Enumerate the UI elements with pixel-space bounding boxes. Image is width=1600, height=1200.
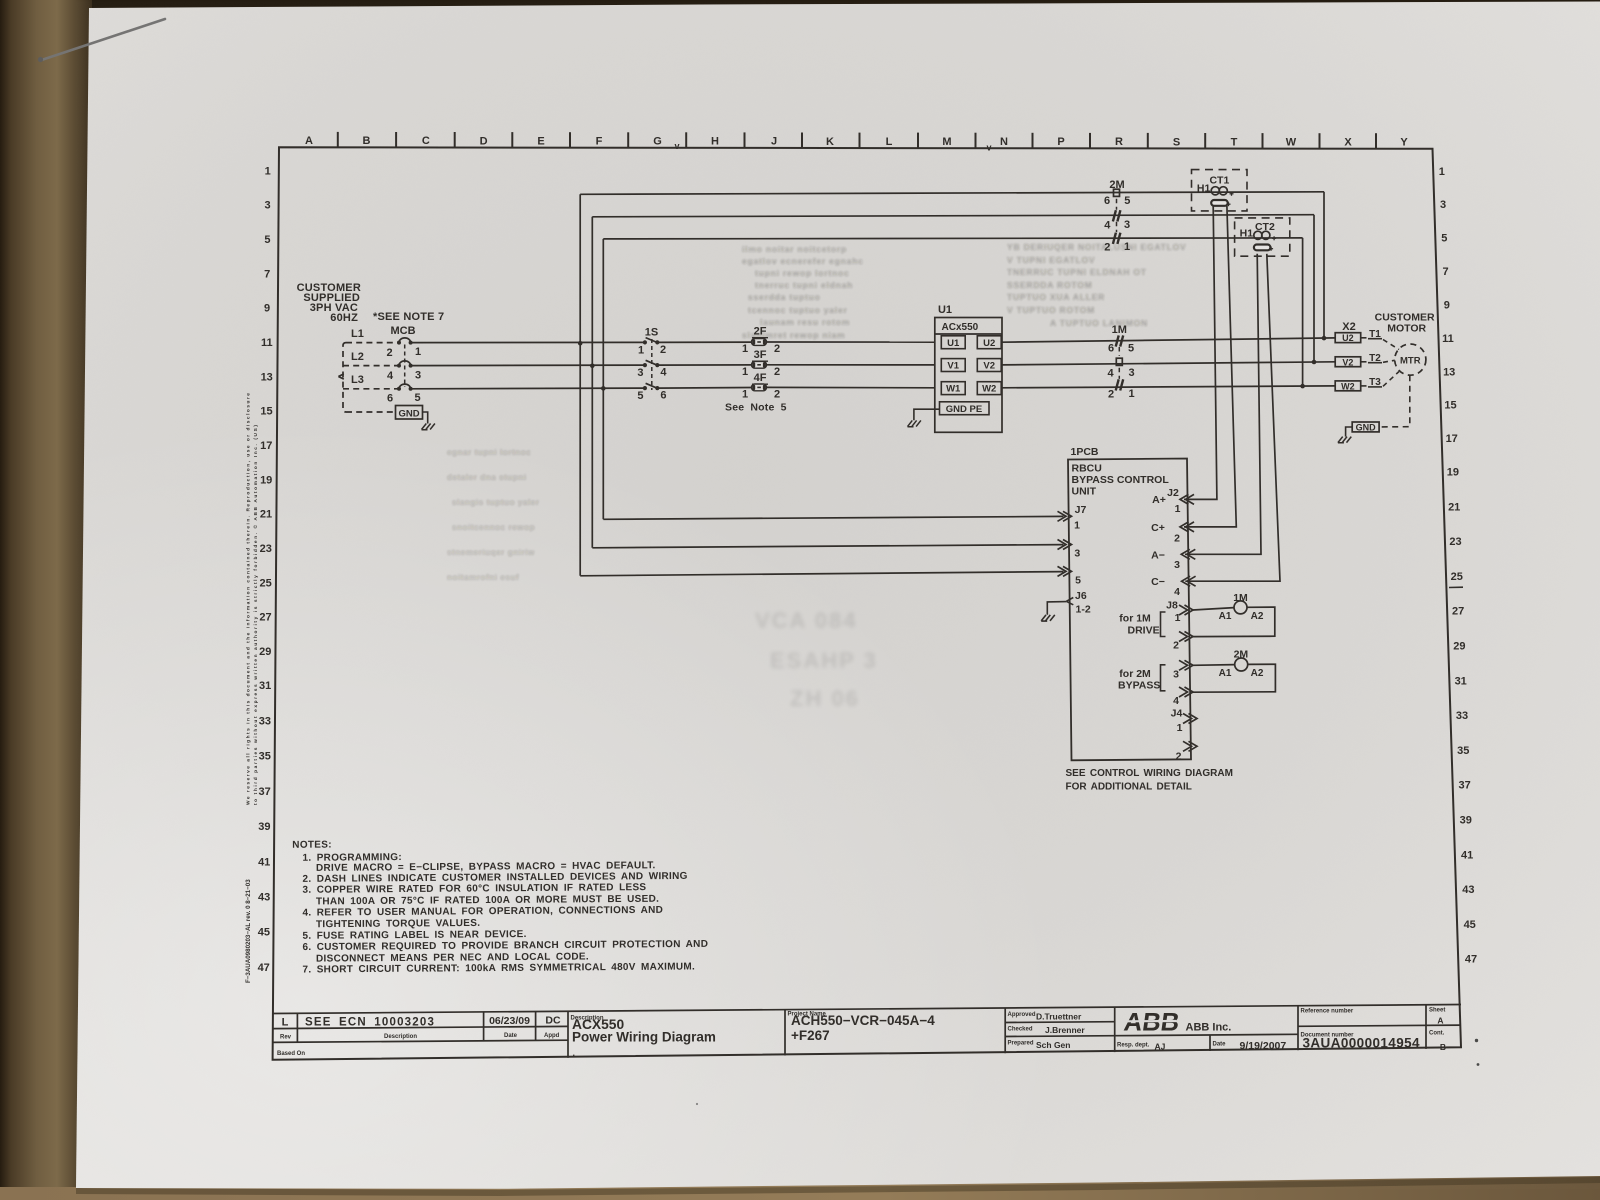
svg-text:MTR: MTR bbox=[1400, 355, 1421, 366]
svg-text:4: 4 bbox=[1107, 368, 1114, 380]
svg-text:11: 11 bbox=[1442, 333, 1454, 345]
svg-text:9/19/2007: 9/19/2007 bbox=[1240, 1040, 1287, 1052]
svg-text:H1: H1 bbox=[1240, 228, 1254, 240]
svg-text:F−3AUA0980203−AL rev. 0 8−21: F−3AUA0980203−AL rev. 0 8−21−03 bbox=[245, 879, 252, 983]
svg-text:7: 7 bbox=[264, 268, 270, 280]
svg-text:A: A bbox=[305, 135, 313, 147]
svg-text:4: 4 bbox=[1173, 695, 1179, 707]
svg-text:L: L bbox=[886, 136, 893, 148]
svg-text:D.Truettner: D.Truettner bbox=[1036, 1012, 1082, 1022]
svg-text:ESAHP 3: ESAHP 3 bbox=[770, 648, 878, 673]
svg-text:Y: Y bbox=[1400, 137, 1408, 149]
svg-text:2: 2 bbox=[774, 366, 780, 378]
svg-text:DRIVE: DRIVE bbox=[1128, 625, 1160, 637]
svg-text:45: 45 bbox=[258, 927, 270, 939]
svg-text:3: 3 bbox=[1074, 548, 1080, 560]
svg-text:E: E bbox=[537, 135, 544, 147]
svg-text:6: 6 bbox=[387, 393, 393, 405]
svg-text:1: 1 bbox=[742, 389, 748, 401]
svg-text:2M: 2M bbox=[1234, 649, 1249, 661]
svg-text:SEE CONTROL WIRING DIAGRAM: SEE CONTROL WIRING DIAGRAM bbox=[1066, 768, 1233, 779]
svg-text:TNERRUC TUPNI ELDNAH OT: TNERRUC TUPNI ELDNAH OT bbox=[1007, 267, 1147, 277]
svg-text:3: 3 bbox=[1124, 219, 1130, 231]
svg-text:25: 25 bbox=[259, 577, 271, 589]
svg-text:3: 3 bbox=[1128, 367, 1134, 379]
svg-text:47: 47 bbox=[1465, 954, 1477, 966]
svg-text:39: 39 bbox=[1460, 815, 1472, 827]
svg-text:GND: GND bbox=[1356, 422, 1377, 432]
svg-text:J2: J2 bbox=[1167, 487, 1179, 499]
svg-text:for 1M: for 1M bbox=[1119, 613, 1151, 625]
svg-text:29: 29 bbox=[1453, 641, 1465, 653]
svg-text:27: 27 bbox=[259, 612, 271, 624]
svg-text:9: 9 bbox=[264, 303, 270, 315]
svg-text:X: X bbox=[1344, 137, 1352, 149]
svg-text:5: 5 bbox=[414, 392, 420, 404]
svg-text:13: 13 bbox=[1443, 366, 1455, 378]
svg-text:RBCU: RBCU bbox=[1072, 463, 1102, 475]
svg-text:J7: J7 bbox=[1075, 504, 1087, 516]
svg-text:Checked: Checked bbox=[1008, 1026, 1033, 1032]
svg-text:5: 5 bbox=[1128, 343, 1134, 355]
svg-text:3: 3 bbox=[1174, 559, 1180, 571]
svg-text:A2: A2 bbox=[1251, 611, 1264, 622]
svg-text:C−: C− bbox=[1151, 576, 1165, 588]
svg-text:GND: GND bbox=[398, 408, 419, 419]
svg-text:1S: 1S bbox=[645, 327, 658, 339]
svg-text:ACx550: ACx550 bbox=[942, 322, 979, 333]
svg-text:1: 1 bbox=[1177, 722, 1183, 734]
svg-text:3: 3 bbox=[1440, 199, 1446, 211]
svg-text:TUPTUO XUA ALLER: TUPTUO XUA ALLER bbox=[1007, 292, 1105, 302]
svg-text:41: 41 bbox=[258, 856, 270, 868]
svg-text:H: H bbox=[711, 136, 719, 148]
svg-text:Date: Date bbox=[504, 1033, 518, 1039]
svg-text:17: 17 bbox=[1446, 433, 1458, 445]
svg-text:1: 1 bbox=[1439, 166, 1445, 178]
svg-text:A TUPTUO LANIMON: A TUPTUO LANIMON bbox=[1050, 318, 1148, 328]
svg-text:21: 21 bbox=[1448, 501, 1460, 513]
svg-text:C+: C+ bbox=[1151, 522, 1165, 534]
svg-text:5: 5 bbox=[1441, 233, 1447, 245]
svg-text:MCB: MCB bbox=[390, 325, 415, 337]
svg-text:5: 5 bbox=[637, 390, 643, 402]
svg-text:tcennoc tuptuo yaler: tcennoc tuptuo yaler bbox=[748, 305, 848, 315]
svg-text:SSERDDA ROTOM: SSERDDA ROTOM bbox=[1007, 280, 1093, 290]
svg-text:ABB Inc.: ABB Inc. bbox=[1186, 1022, 1232, 1034]
svg-text:4F: 4F bbox=[754, 372, 767, 384]
svg-text:for 2M: for 2M bbox=[1119, 668, 1151, 680]
svg-text:See Note 5: See Note 5 bbox=[725, 402, 787, 414]
svg-text:ZH 06: ZH 06 bbox=[790, 686, 860, 711]
svg-text:3AUA0000014954: 3AUA0000014954 bbox=[1303, 1036, 1421, 1051]
svg-text:1-2: 1-2 bbox=[1076, 604, 1091, 616]
svg-text:43: 43 bbox=[258, 892, 270, 904]
svg-text:33: 33 bbox=[1456, 710, 1468, 722]
svg-text:2: 2 bbox=[1174, 533, 1180, 545]
svg-text:29: 29 bbox=[259, 646, 271, 658]
svg-text:R: R bbox=[1115, 136, 1123, 148]
svg-text:6: 6 bbox=[660, 390, 666, 402]
svg-text:60HZ: 60HZ bbox=[330, 312, 358, 324]
svg-text:3: 3 bbox=[637, 367, 643, 379]
svg-text:tnerruc tupni eldnah: tnerruc tupni eldnah bbox=[755, 280, 853, 290]
svg-text:A2: A2 bbox=[1251, 668, 1264, 679]
svg-text:1: 1 bbox=[742, 366, 748, 378]
svg-text:L2: L2 bbox=[351, 351, 364, 363]
svg-text:1: 1 bbox=[742, 343, 748, 355]
svg-text:1: 1 bbox=[415, 346, 421, 358]
svg-text:3: 3 bbox=[264, 200, 270, 212]
svg-text:K: K bbox=[826, 136, 834, 148]
svg-text:Sch Gen: Sch Gen bbox=[1036, 1040, 1070, 1050]
svg-text:1: 1 bbox=[265, 165, 271, 177]
svg-text:J: J bbox=[771, 136, 777, 148]
svg-text:Cont.: Cont. bbox=[1429, 1030, 1445, 1036]
svg-text:.: . bbox=[573, 1048, 576, 1058]
svg-text:Resp. dept.: Resp. dept. bbox=[1117, 1043, 1150, 1049]
svg-text:ACH550−VCR−045A−4: ACH550−VCR−045A−4 bbox=[791, 1013, 935, 1028]
svg-text:A−: A− bbox=[1151, 549, 1165, 561]
svg-text:L1: L1 bbox=[351, 328, 364, 340]
svg-text:BYPASS CONTROL: BYPASS CONTROL bbox=[1072, 474, 1170, 486]
svg-text:FOR ADDITIONAL DETAIL: FOR ADDITIONAL DETAIL bbox=[1066, 782, 1192, 793]
svg-text:Reference number: Reference number bbox=[1301, 1009, 1354, 1015]
svg-text:MOTOR: MOTOR bbox=[1387, 322, 1426, 334]
svg-text:launam resu rotom: launam resu rotom bbox=[760, 317, 850, 327]
svg-text:egatlov ecnerefer egnahc: egatlov ecnerefer egnahc bbox=[742, 256, 864, 266]
svg-text:Approved: Approved bbox=[1008, 1012, 1036, 1018]
svg-text:3F: 3F bbox=[754, 349, 767, 361]
svg-text:*SEE NOTE 7: *SEE NOTE 7 bbox=[373, 311, 444, 323]
svg-text:A1: A1 bbox=[1219, 668, 1232, 679]
svg-text:2: 2 bbox=[386, 347, 392, 359]
svg-text:U1: U1 bbox=[938, 304, 952, 316]
svg-text:2: 2 bbox=[1176, 750, 1182, 762]
svg-text:AJ: AJ bbox=[1155, 1042, 1166, 1052]
svg-text:YB DERIUQER NOITALUSNI EGATLOV: YB DERIUQER NOITALUSNI EGATLOV bbox=[1007, 242, 1187, 252]
svg-text:39: 39 bbox=[258, 821, 270, 833]
svg-text:1: 1 bbox=[1175, 503, 1181, 515]
svg-text:ABB: ABB bbox=[1122, 1009, 1181, 1037]
svg-text:V TUPTUO ROTOM: V TUPTUO ROTOM bbox=[1007, 305, 1095, 315]
svg-text:6: 6 bbox=[1104, 195, 1110, 207]
svg-text:noitamrofni esuf: noitamrofni esuf bbox=[447, 573, 519, 582]
svg-text:V2: V2 bbox=[983, 361, 995, 372]
svg-text:J6: J6 bbox=[1075, 590, 1087, 602]
svg-text:17: 17 bbox=[260, 440, 272, 452]
svg-text:V TUPNI EGATLOV: V TUPNI EGATLOV bbox=[1007, 255, 1095, 265]
svg-text:H1: H1 bbox=[1197, 183, 1211, 195]
svg-text:slanimret rewop niam: slanimret rewop niam bbox=[742, 330, 845, 340]
svg-text:45: 45 bbox=[1464, 919, 1476, 931]
svg-text:J8: J8 bbox=[1166, 600, 1178, 612]
svg-text:5: 5 bbox=[264, 234, 270, 246]
svg-text:TIGHTENING TORQUE VALUES.: TIGHTENING TORQUE VALUES. bbox=[316, 918, 480, 930]
svg-text:X2: X2 bbox=[1342, 321, 1355, 333]
svg-text:B: B bbox=[1440, 1042, 1446, 1052]
svg-text:GND PE: GND PE bbox=[946, 404, 982, 415]
svg-text:1PCB: 1PCB bbox=[1071, 446, 1099, 458]
svg-text:P: P bbox=[1057, 136, 1064, 148]
svg-text:T2: T2 bbox=[1369, 353, 1381, 364]
svg-text:slangis tuptuo yaler: slangis tuptuo yaler bbox=[452, 498, 540, 507]
svg-text:DC: DC bbox=[545, 1015, 561, 1027]
svg-text:S: S bbox=[1173, 136, 1180, 148]
svg-text:+F267: +F267 bbox=[791, 1028, 830, 1043]
svg-text:23: 23 bbox=[1449, 536, 1461, 548]
svg-text:35: 35 bbox=[1457, 745, 1469, 757]
svg-text:11: 11 bbox=[261, 337, 273, 349]
svg-text:Based On: Based On bbox=[277, 1051, 305, 1057]
svg-text:U2: U2 bbox=[983, 338, 995, 349]
svg-text:A: A bbox=[1437, 1016, 1443, 1026]
svg-text:37: 37 bbox=[258, 786, 270, 798]
svg-text:C: C bbox=[422, 135, 430, 147]
svg-text:41: 41 bbox=[1461, 849, 1473, 861]
svg-text:3: 3 bbox=[415, 370, 421, 382]
svg-text:31: 31 bbox=[1455, 675, 1467, 687]
svg-text:Power Wiring Diagram: Power Wiring Diagram bbox=[572, 1030, 716, 1045]
svg-text:W1: W1 bbox=[946, 384, 961, 395]
svg-text:4: 4 bbox=[660, 367, 667, 379]
svg-text:43: 43 bbox=[1462, 884, 1474, 896]
svg-text:T3: T3 bbox=[1369, 377, 1381, 388]
svg-text:31: 31 bbox=[259, 680, 271, 692]
svg-text:7: 7 bbox=[1442, 266, 1448, 278]
svg-text:35: 35 bbox=[259, 751, 271, 763]
svg-text:A+: A+ bbox=[1152, 494, 1166, 506]
svg-text:15: 15 bbox=[260, 406, 272, 418]
svg-text:1: 1 bbox=[1074, 520, 1080, 532]
svg-text:27: 27 bbox=[1452, 606, 1464, 618]
svg-text:23: 23 bbox=[260, 543, 272, 555]
svg-text:snoitcennoc rewop: snoitcennoc rewop bbox=[452, 523, 535, 532]
svg-text:4: 4 bbox=[1104, 220, 1111, 232]
svg-text:W2: W2 bbox=[1341, 381, 1355, 391]
svg-text:N: N bbox=[1000, 136, 1008, 148]
svg-text:A1: A1 bbox=[1219, 611, 1232, 622]
svg-text:2: 2 bbox=[1108, 389, 1114, 401]
svg-text:v: v bbox=[986, 143, 991, 153]
svg-text:V2: V2 bbox=[1342, 357, 1353, 367]
svg-text:UNIT: UNIT bbox=[1072, 486, 1097, 498]
svg-text:47: 47 bbox=[258, 962, 270, 974]
svg-text:13: 13 bbox=[261, 371, 273, 383]
svg-text:06/23/09: 06/23/09 bbox=[489, 1015, 530, 1027]
svg-text:19: 19 bbox=[260, 474, 272, 486]
svg-text:SEE ECN 10003203: SEE ECN 10003203 bbox=[305, 1016, 435, 1028]
svg-text:V1: V1 bbox=[947, 361, 959, 372]
svg-text:Appd: Appd bbox=[544, 1033, 560, 1039]
svg-text:L: L bbox=[282, 1017, 289, 1029]
svg-text:15: 15 bbox=[1444, 400, 1456, 412]
svg-text:3: 3 bbox=[1173, 668, 1179, 680]
svg-text:L3: L3 bbox=[351, 374, 364, 386]
svg-text:ilmo noitar noitcetorp: ilmo noitar noitcetorp bbox=[742, 244, 847, 254]
svg-text:J4: J4 bbox=[1171, 708, 1183, 720]
svg-text:4: 4 bbox=[387, 370, 394, 382]
svg-text:G: G bbox=[653, 136, 662, 148]
svg-text:W: W bbox=[1286, 137, 1297, 149]
svg-text:Sheet: Sheet bbox=[1429, 1008, 1445, 1014]
svg-text:detaler dna stupni: detaler dna stupni bbox=[447, 473, 527, 482]
svg-text:21: 21 bbox=[260, 509, 272, 521]
svg-text:5: 5 bbox=[1075, 575, 1081, 587]
svg-text:19: 19 bbox=[1447, 467, 1459, 479]
svg-text:2: 2 bbox=[774, 389, 780, 401]
svg-text:M: M bbox=[942, 136, 951, 148]
svg-text:2: 2 bbox=[660, 344, 666, 356]
svg-text:We reserve all rights in this: We reserve all rights in this document a… bbox=[246, 393, 252, 805]
svg-text:1: 1 bbox=[1128, 388, 1134, 400]
svg-text:sserdda tuptuo: sserdda tuptuo bbox=[748, 292, 821, 302]
svg-text:1: 1 bbox=[1175, 612, 1181, 624]
svg-text:B: B bbox=[363, 135, 371, 147]
svg-text:Date: Date bbox=[1213, 1042, 1227, 1048]
svg-text:2: 2 bbox=[774, 343, 780, 355]
svg-text:W2: W2 bbox=[982, 384, 996, 395]
svg-text:to third parties without expre: to third parties without express written… bbox=[252, 425, 259, 805]
svg-text:T: T bbox=[1231, 136, 1238, 148]
svg-text:VCA 084: VCA 084 bbox=[755, 608, 857, 633]
svg-text:2: 2 bbox=[1173, 640, 1179, 652]
svg-text:BYPASS: BYPASS bbox=[1118, 679, 1160, 691]
svg-text:1: 1 bbox=[638, 345, 644, 357]
svg-text:5: 5 bbox=[1124, 195, 1130, 207]
svg-text:Rev: Rev bbox=[280, 1035, 292, 1041]
svg-text:J.Brenner: J.Brenner bbox=[1045, 1025, 1085, 1035]
svg-text:U2: U2 bbox=[1342, 333, 1354, 343]
svg-text:U1: U1 bbox=[947, 338, 960, 349]
svg-text:37: 37 bbox=[1458, 780, 1470, 792]
svg-text:25: 25 bbox=[1451, 571, 1463, 583]
svg-text:stnemeriuqer gniriw: stnemeriuqer gniriw bbox=[447, 548, 535, 557]
svg-text:CT1: CT1 bbox=[1209, 175, 1229, 187]
svg-text:NOTES:: NOTES: bbox=[292, 839, 332, 850]
svg-text:4: 4 bbox=[1174, 586, 1180, 598]
svg-text:tupni rewop lortnoc: tupni rewop lortnoc bbox=[755, 268, 850, 278]
svg-text:T1: T1 bbox=[1369, 329, 1381, 340]
svg-text:v: v bbox=[674, 141, 679, 151]
svg-text:egnar tupni lortnoc: egnar tupni lortnoc bbox=[447, 448, 531, 457]
svg-text:D: D bbox=[480, 135, 488, 147]
svg-text:Prepared: Prepared bbox=[1008, 1041, 1034, 1047]
svg-text:Description: Description bbox=[384, 1034, 417, 1040]
svg-text:33: 33 bbox=[259, 716, 271, 728]
svg-text:9: 9 bbox=[1444, 299, 1450, 311]
svg-text:6: 6 bbox=[1108, 343, 1114, 355]
svg-text:F: F bbox=[596, 135, 603, 147]
